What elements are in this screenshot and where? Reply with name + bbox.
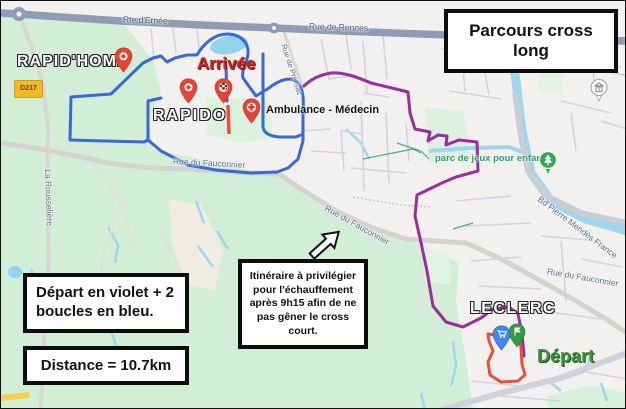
shop-pin-icon [114,47,133,73]
flag-pin-icon [508,323,526,348]
dirt-path [353,197,431,207]
warmup-direction-arrow-icon [301,215,356,265]
road-shield-d217: D217 [14,80,43,98]
park-tree-pin-icon [538,150,558,176]
roundabout-center [272,26,276,30]
map-flyer: Rte d'Ernée Rue de Rennes Rue du Fauconn… [0,0,626,409]
yellow-road [1,395,29,398]
checkered-flag-pin-icon [214,78,233,104]
small-pond [8,266,22,278]
legend-box: Départ en violet + 2 boucles en bleu. [23,273,189,333]
medical-annotation: Ambulance - Médecin [266,104,379,116]
place-label-rapido: RAPIDO [153,107,227,125]
place-label-leclerc: LECLERC [470,300,556,318]
shop-pin-icon [179,78,198,104]
start-annotation: Départ [537,346,594,367]
poi-label-park: parc de jeux pour enfant [435,153,545,164]
finish-annotation: Arrivée [197,54,256,74]
museum-pin-icon [589,78,609,103]
finish-line-mark [228,105,229,134]
road-label-rennes: Rue de Rennes [309,21,368,33]
title-box: Parcours cross long [444,9,618,73]
place-label-rapid-home: RAPID'HOME [17,53,129,71]
roundabout-center [16,11,21,16]
warmup-box: Itinéraire à privilégier pour l'échauffe… [238,259,368,349]
road-label-ernee: Rte d'Ernée [123,14,168,26]
distance-box: Distance = 10.7km [23,346,189,385]
ambulance-pin-icon [242,98,261,124]
road-label-rousseliere: La Rousselière [43,169,55,226]
